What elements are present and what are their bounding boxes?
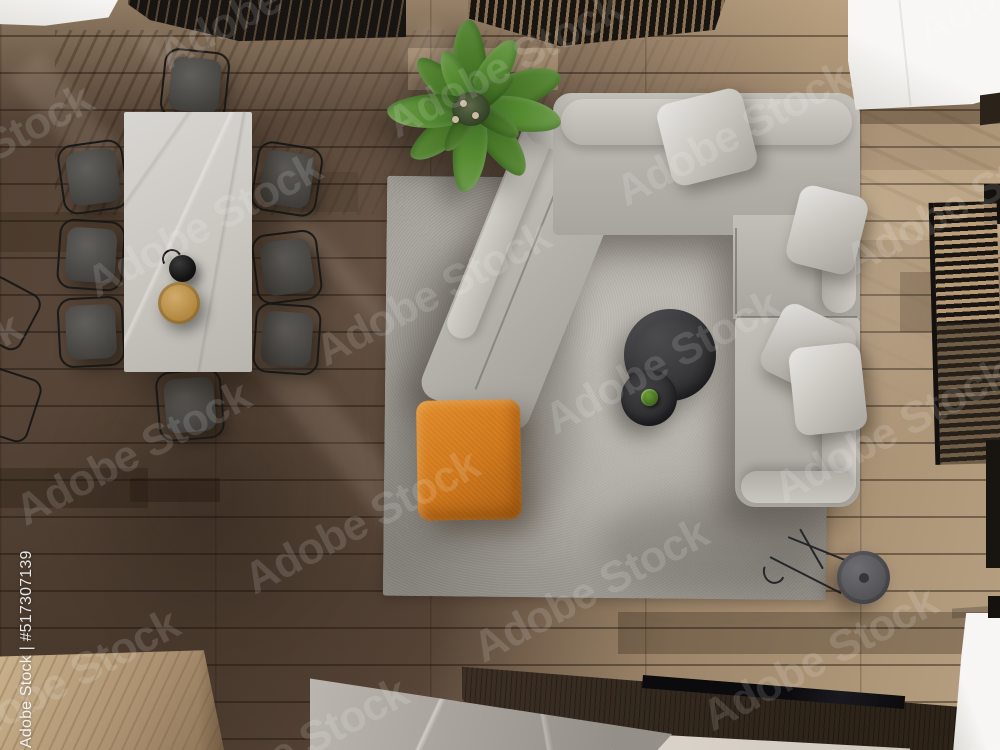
interior-photo: Adobe StockAdobe StockAdobe StockAdobe S… [0, 0, 1000, 750]
vignette [0, 0, 1000, 750]
